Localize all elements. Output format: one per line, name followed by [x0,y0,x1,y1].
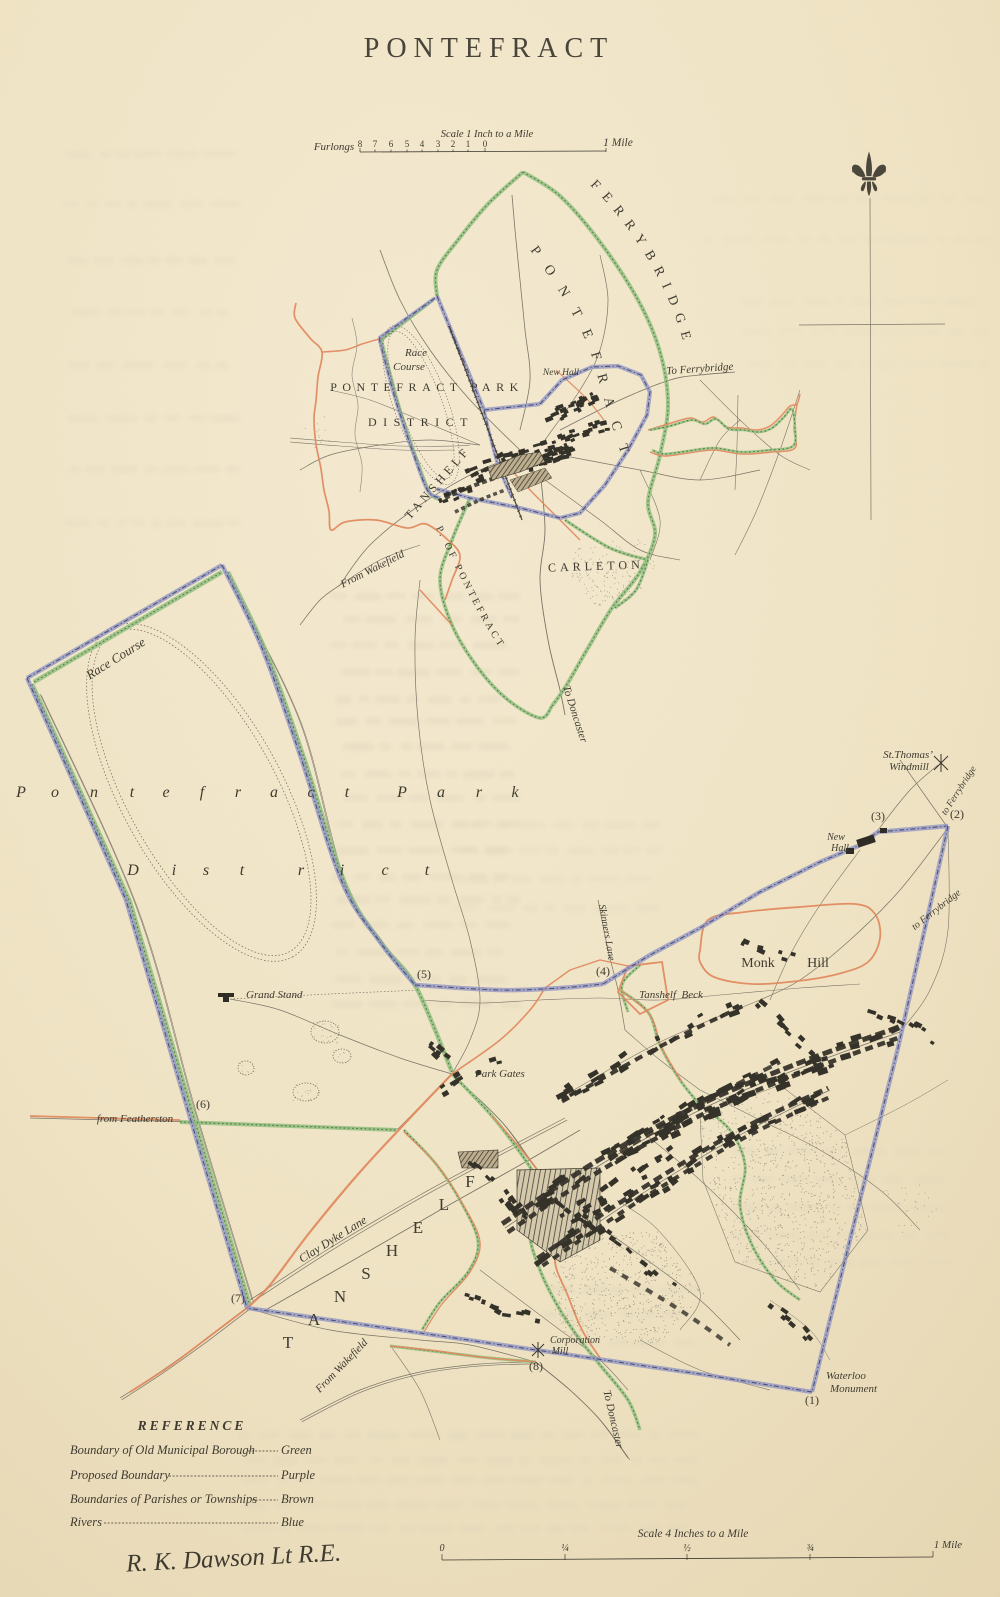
svg-text:D: D [126,862,139,879]
svg-text:Course: Course [393,361,425,373]
svg-text:Blue: Blue [281,1515,304,1529]
svg-text:5: 5 [405,139,410,149]
svg-text:(3): (3) [871,809,885,823]
svg-text:F: F [465,1172,474,1191]
svg-text:Rivers: Rivers [69,1515,102,1529]
svg-text:Corporation: Corporation [550,1335,600,1346]
svg-text:A: A [308,1310,321,1329]
svg-text:Monument: Monument [829,1383,878,1395]
svg-text:PONTEFRACT PARK: PONTEFRACT PARK [330,380,524,394]
svg-text:1 Mile: 1 Mile [934,1539,963,1551]
svg-text:½: ½ [683,1543,691,1554]
svg-text:i: i [172,862,176,879]
svg-text:New Hall: New Hall [542,368,580,378]
svg-text:t: t [425,862,430,879]
svg-text:t: t [240,862,245,879]
svg-text:T: T [283,1333,294,1352]
svg-text:7: 7 [373,139,378,149]
svg-text:c: c [381,862,388,879]
svg-text:Hall: Hall [830,843,849,854]
svg-text:(7): (7) [231,1291,245,1305]
svg-text:Furlongs: Furlongs [313,141,354,153]
svg-text:t: t [345,784,350,801]
svg-text:Waterloo: Waterloo [826,1370,866,1382]
svg-text:a: a [270,784,278,801]
svg-text:r: r [476,784,483,801]
svg-text:N: N [334,1287,346,1306]
svg-text:S: S [361,1264,370,1283]
svg-text:Brown: Brown [281,1492,314,1506]
svg-text:0: 0 [440,1543,445,1554]
svg-text:t: t [130,784,135,801]
svg-text:8: 8 [358,139,363,149]
svg-text:Mill: Mill [551,1346,569,1357]
svg-text:6: 6 [389,139,394,149]
svg-text:1: 1 [466,139,471,149]
svg-text:(5): (5) [417,967,431,981]
svg-text:n: n [90,784,98,801]
svg-text:Hill: Hill [807,956,829,971]
svg-text:1 Mile: 1 Mile [603,137,633,149]
svg-text:e: e [162,784,169,801]
svg-text:H: H [386,1241,398,1260]
svg-text:New: New [826,832,845,843]
svg-text:s: s [203,862,209,879]
svg-text:(2): (2) [950,807,964,821]
svg-text:P: P [396,784,407,801]
svg-text:Monk: Monk [741,956,774,971]
svg-text:r: r [298,862,305,879]
svg-text:Park Gates: Park Gates [474,1068,525,1080]
svg-text:Proposed Boundary: Proposed Boundary [69,1468,170,1482]
svg-text:¾: ¾ [806,1543,814,1554]
svg-text:Race: Race [404,347,427,359]
svg-text:c: c [307,784,314,801]
svg-text:Boundary of Old Municipal Boro: Boundary of Old Municipal Borough [70,1443,255,1457]
svg-text:P: P [15,784,26,801]
svg-text:Windmill: Windmill [889,761,929,773]
svg-text:3: 3 [436,139,441,149]
svg-text:Scale 4 Inches to a Mile: Scale 4 Inches to a Mile [638,1528,749,1540]
svg-text:r: r [235,784,242,801]
svg-text:o: o [51,784,59,801]
svg-text:DISTRICT: DISTRICT [368,415,474,429]
svg-text:(4): (4) [596,964,610,978]
svg-text:Purple: Purple [280,1468,315,1482]
svg-text:REFERENCE: REFERENCE [137,1418,247,1433]
svg-text:¼: ¼ [561,1543,569,1554]
svg-text:i: i [340,862,344,879]
svg-text:St.Thomas’: St.Thomas’ [883,749,933,761]
svg-text:(8): (8) [529,1359,543,1373]
svg-text:(1): (1) [805,1393,819,1407]
svg-text:Grand Stand: Grand Stand [246,989,303,1001]
svg-text:PONTEFRACT: PONTEFRACT [364,33,614,64]
svg-text:Tanshelf Beck: Tanshelf Beck [639,989,704,1001]
svg-text:(6): (6) [196,1097,210,1111]
svg-text:0: 0 [483,139,488,149]
svg-text:a: a [437,784,445,801]
svg-text:from Featherston: from Featherston [97,1113,174,1125]
svg-text:E: E [413,1218,423,1237]
svg-text:2: 2 [451,139,456,149]
svg-text:Boundaries of Parishes or Town: Boundaries of Parishes or Townships [70,1492,257,1506]
svg-text:k: k [511,784,519,801]
svg-text:L: L [439,1195,449,1214]
svg-text:4: 4 [420,139,425,149]
svg-text:Green: Green [281,1443,312,1457]
